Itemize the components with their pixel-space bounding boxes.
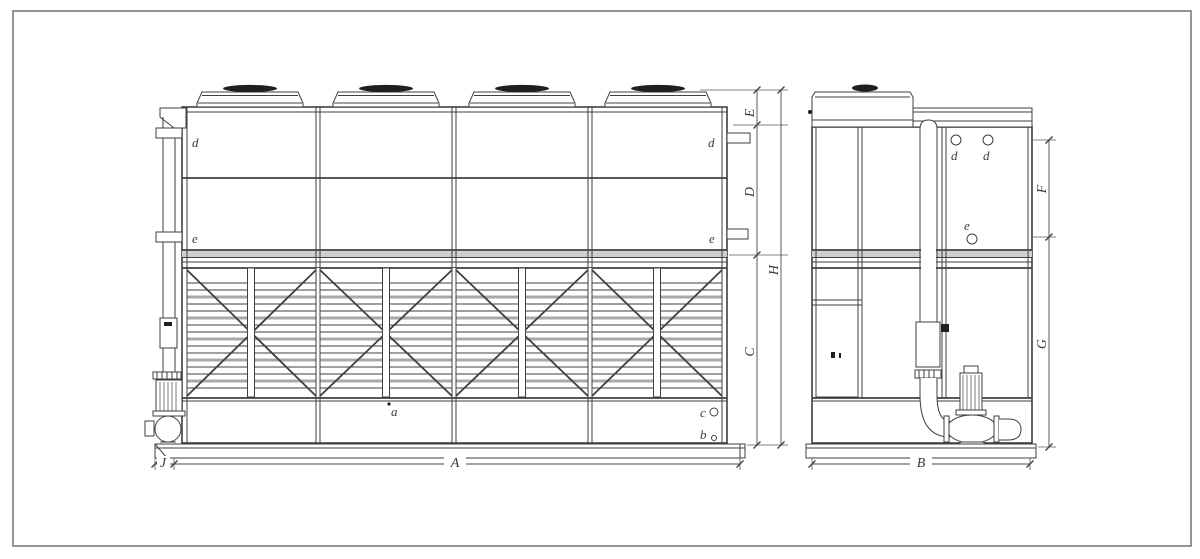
- label-d-right: d: [708, 135, 715, 150]
- label-c: c: [700, 405, 706, 420]
- label-d-side: d: [951, 148, 958, 163]
- dim-label-G: G: [1035, 339, 1050, 349]
- label-d-side: d: [983, 148, 990, 163]
- connection-d-port: [951, 135, 961, 145]
- pump-volute: [155, 416, 181, 442]
- pipe-sleeve: [916, 322, 940, 367]
- dim-label-J: J: [160, 456, 167, 471]
- connection-c-port: [710, 408, 718, 416]
- connection-d-port: [983, 135, 993, 145]
- pipe-flange: [156, 128, 182, 138]
- dim-label-C: C: [743, 347, 758, 357]
- access-door: [816, 305, 858, 397]
- fan-hub-cap: [495, 85, 549, 92]
- pump-flange: [944, 416, 949, 442]
- dim-label-B: B: [917, 456, 926, 471]
- sensor-box: [941, 324, 949, 332]
- dim-label-A: A: [450, 456, 460, 471]
- fan-hub-cap: [359, 85, 413, 92]
- return-bend: [999, 419, 1021, 440]
- pipe-top-bend: [920, 120, 937, 140]
- dim-label-E: E: [743, 108, 758, 118]
- label-e-right: e: [709, 231, 715, 246]
- connection-e-port: [967, 234, 977, 244]
- dim-label-D: D: [743, 187, 758, 198]
- drawing-canvas: d e d e a c b E D C: [0, 0, 1200, 559]
- label-e-side: e: [964, 218, 970, 233]
- label-d-left: d: [192, 135, 199, 150]
- dim-label-F: F: [1035, 184, 1050, 194]
- front-view: d e d e a c b E D C: [145, 85, 788, 471]
- label-b: b: [700, 427, 707, 442]
- dim-label-H: H: [767, 264, 782, 276]
- pipe-flange: [156, 232, 182, 242]
- pump-suction-stub: [145, 421, 154, 436]
- fan-hub-cap: [631, 85, 685, 92]
- connection-b-port: [712, 436, 717, 441]
- pump-flange: [994, 416, 999, 442]
- connection-e-stub: [727, 229, 748, 239]
- fan-hub-cap: [223, 85, 277, 92]
- fan-hub-cap: [852, 85, 878, 92]
- label-a: a: [391, 404, 398, 419]
- pump-volute: [947, 415, 997, 443]
- connection-d-stub: [727, 133, 750, 143]
- label-e-left: e: [192, 231, 198, 246]
- cowl-bolt: [808, 110, 812, 114]
- door-handle: [831, 352, 835, 358]
- side-view: d d e: [806, 85, 1056, 472]
